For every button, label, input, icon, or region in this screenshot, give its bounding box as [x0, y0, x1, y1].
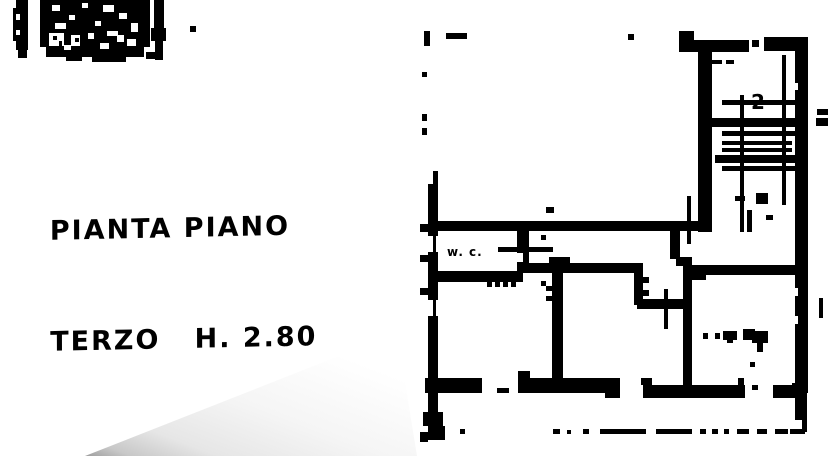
balcony-dashed-line	[460, 412, 807, 434]
walls	[428, 221, 798, 392]
left-outer-wall	[420, 171, 445, 442]
scanned-floorplan-page: w. c. 2 PIANTA PIANO TERZO H. 2.80	[0, 0, 828, 456]
stair-number-label: 2	[751, 90, 765, 114]
plan-caption: PIANTA PIANO TERZO H. 2.80	[50, 133, 318, 435]
illegible-room-label	[703, 329, 768, 367]
wc-room-label: w. c.	[447, 245, 483, 259]
caption-line-1: PIANTA PIANO	[50, 207, 317, 250]
bottom-outer-wall	[425, 371, 807, 420]
caption-line-2: TERZO H. 2.80	[50, 318, 317, 361]
floor-plan	[420, 31, 828, 442]
